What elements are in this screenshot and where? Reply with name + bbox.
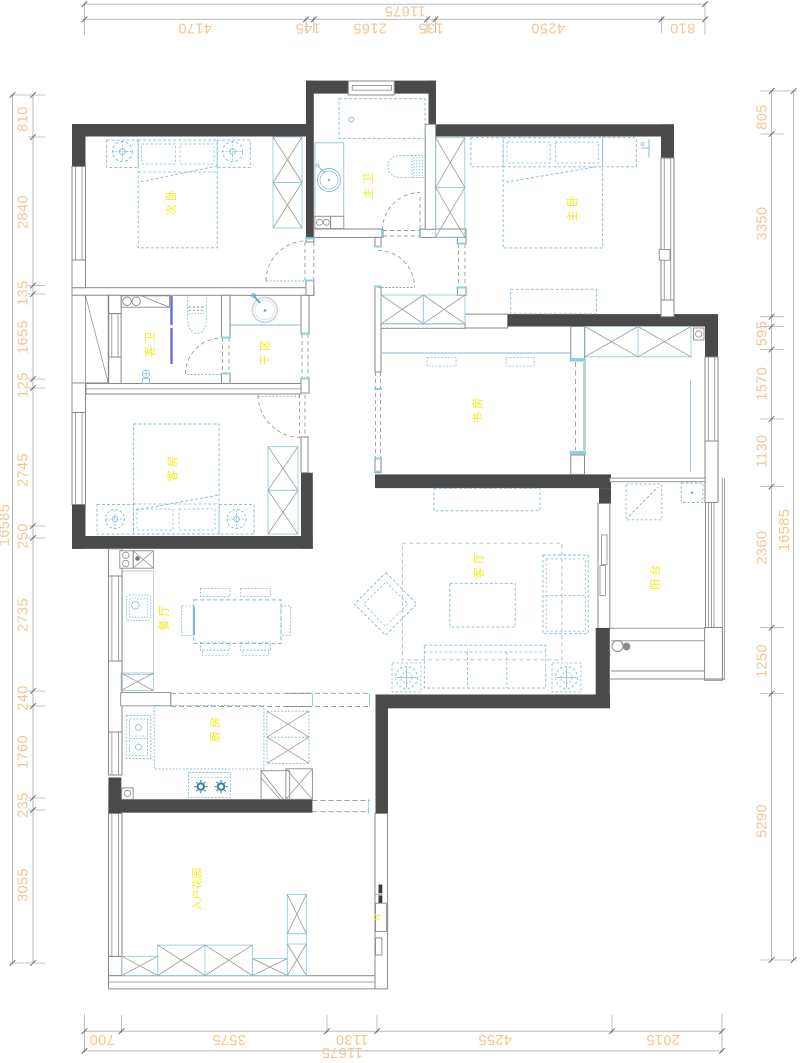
svg-text:4250: 4250 [531,20,565,36]
svg-text:11675: 11675 [384,3,425,19]
svg-text:主卧: 主卧 [566,193,579,222]
svg-text:2360: 2360 [755,531,771,565]
svg-text:125: 125 [16,372,32,397]
svg-text:3575: 3575 [212,1031,246,1047]
svg-text:3055: 3055 [16,868,32,902]
svg-text:16585: 16585 [0,504,13,546]
svg-text:700: 700 [89,1031,114,1047]
svg-text:16585: 16585 [777,509,793,551]
svg-text:次卧: 次卧 [164,187,178,216]
svg-text:入户花园: 入户花园 [191,868,204,911]
svg-text:2015: 2015 [646,1031,680,1047]
svg-text:书房: 书房 [472,395,485,424]
svg-text:810: 810 [16,106,32,131]
svg-text:805: 805 [755,104,771,129]
svg-text:2745: 2745 [16,453,32,487]
svg-text:3350: 3350 [755,207,771,241]
svg-text:2165: 2165 [353,20,387,36]
svg-text:1570: 1570 [755,367,771,401]
svg-text:1250: 1250 [755,644,771,678]
svg-text:阳台: 阳台 [648,561,662,590]
svg-text:1130: 1130 [755,435,771,468]
svg-text:1760: 1760 [16,735,32,769]
svg-text:客房: 客房 [165,453,179,482]
svg-text:4170: 4170 [178,20,212,36]
svg-text:11675: 11675 [321,1044,362,1060]
svg-text:4255: 4255 [478,1031,512,1047]
svg-text:810: 810 [670,20,695,36]
svg-text:135: 135 [418,20,443,36]
svg-text:客卫: 客卫 [143,328,157,357]
svg-text:235: 235 [16,792,32,817]
svg-text:主卫: 主卫 [362,170,375,199]
svg-text:135: 135 [16,280,32,305]
svg-text:5290: 5290 [755,804,771,838]
svg-text:250: 250 [16,523,32,548]
svg-text:厨房: 厨房 [209,714,222,743]
svg-text:240: 240 [16,685,32,710]
svg-text:R: R [373,913,383,920]
svg-text:2840: 2840 [16,195,32,229]
svg-text:145: 145 [295,20,320,36]
svg-text:1655: 1655 [16,320,32,354]
svg-text:干区: 干区 [260,337,272,366]
svg-text:客厅: 客厅 [472,550,486,579]
svg-text:595: 595 [755,321,771,346]
svg-text:2735: 2735 [16,598,32,632]
svg-text:餐厅: 餐厅 [157,602,171,631]
